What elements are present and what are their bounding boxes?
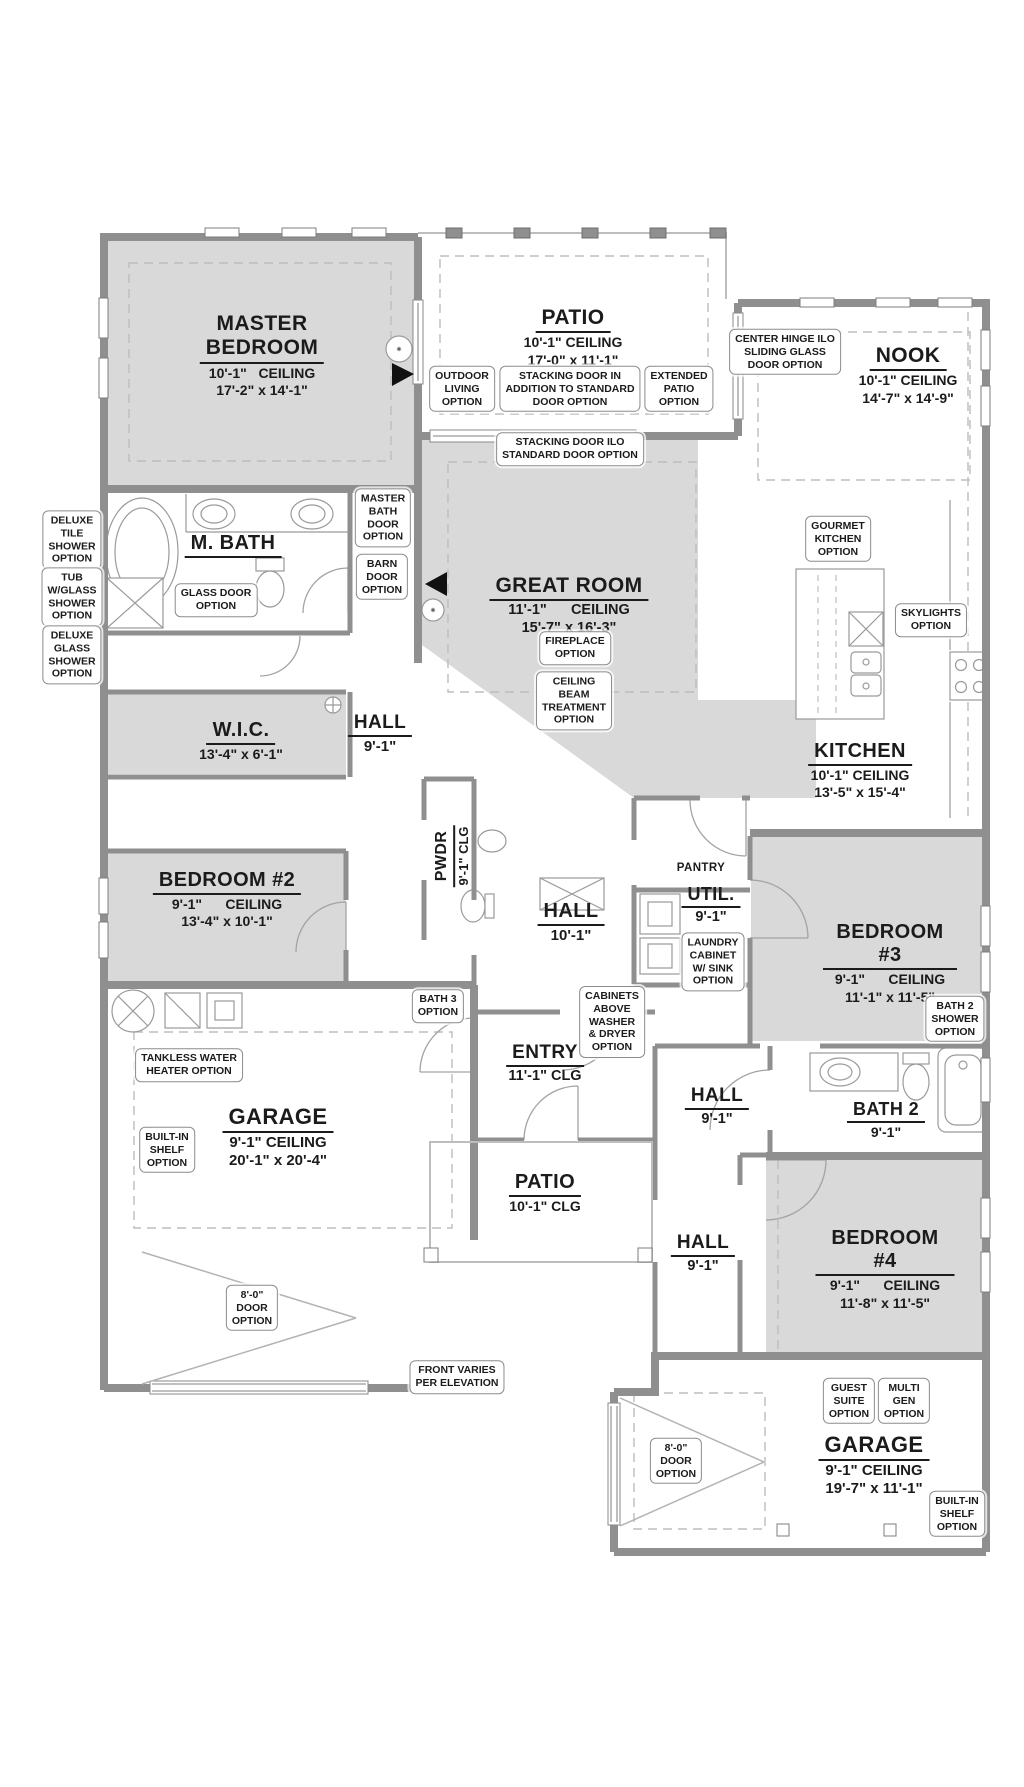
labels-layer: MASTER BEDROOM10'-1" CEILING17'-2" x 14'… bbox=[0, 0, 1024, 1787]
room-dim-pwdr-0: 9'-1" CLG bbox=[456, 825, 471, 887]
room-title-patio-top: PATIO bbox=[535, 306, 610, 333]
option-callout-extended-patio: EXTENDED PATIO OPTION bbox=[644, 366, 713, 412]
room-dim-wic-0: 13'-4" x 6'-1" bbox=[199, 746, 283, 762]
room-title-garage-main: GARAGE bbox=[223, 1104, 334, 1133]
room-label-patio-front: PATIO10'-1" CLG bbox=[509, 1171, 581, 1214]
room-title-bath-2: BATH 2 bbox=[847, 1099, 925, 1123]
room-dim-hall-bedroom4-0: 9'-1" bbox=[671, 1258, 735, 1275]
room-label-garage-main: GARAGE9'-1" CEILING20'-1" x 20'-4" bbox=[223, 1104, 334, 1169]
room-title-great-room: GREAT ROOM bbox=[489, 574, 648, 601]
option-callout-multi-gen: MULTI GEN OPTION bbox=[878, 1378, 930, 1424]
room-title-hall-upper: HALL bbox=[348, 712, 412, 737]
room-title-bedroom-3: BEDROOM #3 bbox=[823, 921, 957, 970]
room-label-wic: W.I.C.13'-4" x 6'-1" bbox=[199, 719, 283, 762]
room-label-bedroom-4: BEDROOM #49'-1" CEILING11'-8" x 11'-5" bbox=[816, 1227, 955, 1311]
room-title-bedroom-4: BEDROOM #4 bbox=[816, 1227, 955, 1276]
room-label-hall-bath2: HALL9'-1" bbox=[685, 1085, 749, 1128]
room-dim-master-bedroom-0: 10'-1" CEILING bbox=[200, 365, 324, 381]
room-label-kitchen: KITCHEN10'-1" CEILING13'-5" x 15'-4" bbox=[808, 740, 912, 801]
room-label-m-bath: M. BATH bbox=[185, 532, 282, 558]
option-callout-tankless: TANKLESS WATER HEATER OPTION bbox=[135, 1048, 243, 1082]
room-label-bath-2: BATH 29'-1" bbox=[847, 1099, 925, 1140]
option-callout-stacking-door-addition: STACKING DOOR IN ADDITION TO STANDARD DO… bbox=[499, 366, 640, 412]
room-dim-bath-2-0: 9'-1" bbox=[847, 1124, 925, 1140]
option-callout-door-8-main: 8'-0" DOOR OPTION bbox=[226, 1285, 278, 1331]
room-dim-nook-1: 14'-7" x 14'-9" bbox=[859, 390, 958, 406]
option-callout-outdoor-living: OUTDOOR LIVING OPTION bbox=[429, 366, 495, 412]
option-callout-center-hinge: CENTER HINGE ILO SLIDING GLASS DOOR OPTI… bbox=[729, 329, 841, 375]
room-dim-hall-bath2-0: 9'-1" bbox=[685, 1111, 749, 1128]
room-title-nook: NOOK bbox=[870, 344, 947, 371]
option-callout-stacking-door-ilo: STACKING DOOR ILO STANDARD DOOR OPTION bbox=[496, 432, 644, 466]
room-label-pantry: PANTRY bbox=[677, 858, 725, 877]
room-dim-bedroom-2-0: 9'-1" CEILING bbox=[153, 896, 301, 912]
option-callout-barn-door: BARN DOOR OPTION bbox=[356, 554, 408, 600]
option-callout-bath3: BATH 3 OPTION bbox=[412, 989, 464, 1023]
option-callout-deluxe-tile-shower: DELUXE TILE SHOWER OPTION bbox=[42, 510, 101, 569]
option-callout-door-8-rear: 8'-0" DOOR OPTION bbox=[650, 1438, 702, 1484]
room-title-bedroom-2: BEDROOM #2 bbox=[153, 869, 301, 895]
option-callout-gourmet-kitchen: GOURMET KITCHEN OPTION bbox=[805, 516, 871, 562]
room-dim-great-room-0: 11'-1" CEILING bbox=[489, 602, 648, 619]
room-label-pwdr: PWDR9'-1" CLG bbox=[433, 825, 471, 887]
room-label-bedroom-2: BEDROOM #29'-1" CEILING13'-4" x 10'-1" bbox=[153, 869, 301, 930]
room-label-hall-center: HALL10'-1" bbox=[538, 900, 605, 945]
room-title-entry: ENTRY bbox=[506, 1042, 584, 1067]
option-callout-master-bath-door: MASTER BATH DOOR OPTION bbox=[355, 488, 411, 547]
room-dim-garage-main-0: 9'-1" CEILING bbox=[223, 1134, 334, 1151]
room-label-garage-rear: GARAGE9'-1" CEILING19'-7" x 11'-1" bbox=[819, 1432, 930, 1497]
room-label-bedroom-3: BEDROOM #39'-1" CEILING11'-1" x 11'-5" bbox=[823, 921, 957, 1005]
room-label-hall-upper: HALL9'-1" bbox=[348, 712, 412, 755]
option-callout-builtin-shelf-main: BUILT-IN SHELF OPTION bbox=[139, 1127, 195, 1173]
room-title-master-bedroom: MASTER BEDROOM bbox=[200, 312, 324, 364]
room-title-wic: W.I.C. bbox=[207, 719, 276, 745]
room-label-patio-top: PATIO10'-1" CEILING17'-0" x 11'-1" bbox=[524, 306, 623, 368]
room-dim-entry-0: 11'-1" CLG bbox=[506, 1068, 584, 1085]
option-callout-ceiling-beam: CEILING BEAM TREATMENT OPTION bbox=[536, 671, 612, 730]
room-dim-nook-0: 10'-1" CEILING bbox=[859, 372, 958, 388]
option-callout-glass-door: GLASS DOOR OPTION bbox=[175, 583, 258, 617]
room-label-hall-bedroom4: HALL9'-1" bbox=[671, 1232, 735, 1275]
option-callout-cabinets-above: CABINETS ABOVE WASHER & DRYER OPTION bbox=[579, 986, 645, 1058]
room-label-master-bedroom: MASTER BEDROOM10'-1" CEILING17'-2" x 14'… bbox=[200, 312, 324, 398]
room-title-pantry: PANTRY bbox=[677, 862, 725, 875]
option-callout-fireplace: FIREPLACE OPTION bbox=[539, 631, 611, 665]
option-callout-skylights: SKYLIGHTS OPTION bbox=[895, 603, 967, 637]
room-title-m-bath: M. BATH bbox=[185, 532, 282, 558]
option-callout-builtin-shelf-rear: BUILT-IN SHELF OPTION bbox=[929, 1491, 985, 1537]
floor-plan-page: MASTER BEDROOM10'-1" CEILING17'-2" x 14'… bbox=[0, 0, 1024, 1787]
room-label-util: UTIL.9'-1" bbox=[682, 884, 741, 926]
option-callout-front-varies: FRONT VARIES PER ELEVATION bbox=[409, 1360, 504, 1394]
room-dim-patio-top-0: 10'-1" CEILING bbox=[524, 334, 623, 350]
room-dim-kitchen-0: 10'-1" CEILING bbox=[808, 767, 912, 783]
option-callout-guest-suite: GUEST SUITE OPTION bbox=[823, 1378, 875, 1424]
room-title-hall-bedroom4: HALL bbox=[671, 1232, 735, 1257]
room-title-hall-bath2: HALL bbox=[685, 1085, 749, 1110]
room-dim-bedroom-4-0: 9'-1" CEILING bbox=[816, 1277, 955, 1293]
room-title-pwdr: PWDR bbox=[433, 825, 455, 887]
option-callout-deluxe-glass-shower: DELUXE GLASS SHOWER OPTION bbox=[42, 625, 101, 684]
room-dim-garage-rear-1: 19'-7" x 11'-1" bbox=[819, 1480, 930, 1497]
room-dim-kitchen-1: 13'-5" x 15'-4" bbox=[808, 784, 912, 800]
room-title-util: UTIL. bbox=[682, 884, 741, 908]
option-callout-laundry-cabinet: LAUNDRY CABINET W/ SINK OPTION bbox=[682, 932, 745, 991]
room-label-nook: NOOK10'-1" CEILING14'-7" x 14'-9" bbox=[859, 344, 958, 406]
room-dim-patio-front-0: 10'-1" CLG bbox=[509, 1198, 581, 1214]
room-title-kitchen: KITCHEN bbox=[808, 740, 912, 766]
room-dim-bedroom-4-1: 11'-8" x 11'-5" bbox=[816, 1295, 955, 1311]
room-label-entry: ENTRY11'-1" CLG bbox=[506, 1042, 584, 1085]
room-title-hall-center: HALL bbox=[538, 900, 605, 926]
room-dim-bedroom-2-1: 13'-4" x 10'-1" bbox=[153, 913, 301, 929]
room-title-garage-rear: GARAGE bbox=[819, 1432, 930, 1461]
room-dim-master-bedroom-1: 17'-2" x 14'-1" bbox=[200, 382, 324, 398]
option-callout-bath2-shower: BATH 2 SHOWER OPTION bbox=[925, 996, 984, 1042]
room-dim-util-0: 9'-1" bbox=[682, 909, 741, 926]
room-dim-hall-center-0: 10'-1" bbox=[538, 927, 605, 944]
room-label-great-room: GREAT ROOM11'-1" CEILING15'-7" x 16'-3" bbox=[489, 574, 648, 637]
room-dim-hall-upper-0: 9'-1" bbox=[348, 738, 412, 755]
option-callout-tub-glass-shower: TUB W/GLASS SHOWER OPTION bbox=[42, 567, 103, 626]
room-dim-bedroom-3-0: 9'-1" CEILING bbox=[823, 971, 957, 987]
room-dim-garage-main-1: 20'-1" x 20'-4" bbox=[223, 1152, 334, 1169]
room-title-patio-front: PATIO bbox=[509, 1171, 581, 1197]
room-dim-garage-rear-0: 9'-1" CEILING bbox=[819, 1462, 930, 1479]
